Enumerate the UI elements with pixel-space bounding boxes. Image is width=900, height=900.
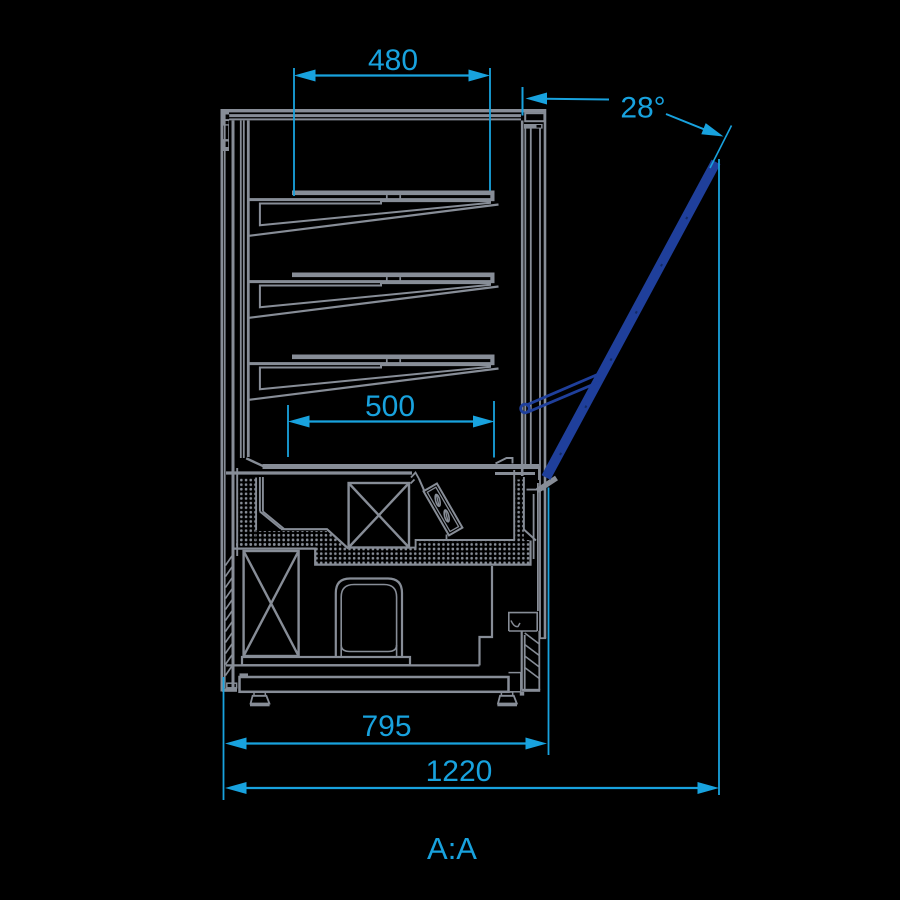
svg-text:A:A: A:A	[427, 831, 477, 866]
svg-text:480: 480	[368, 44, 418, 77]
svg-text:28°: 28°	[620, 92, 665, 125]
svg-text:500: 500	[365, 390, 415, 423]
svg-text:795: 795	[361, 710, 411, 743]
svg-text:1220: 1220	[426, 755, 493, 788]
